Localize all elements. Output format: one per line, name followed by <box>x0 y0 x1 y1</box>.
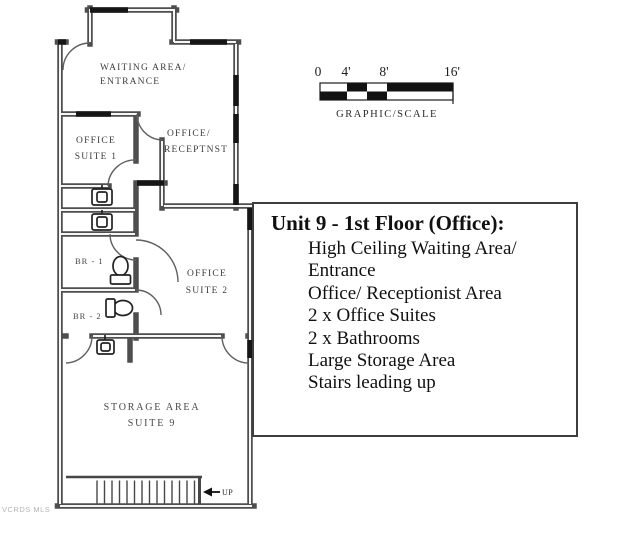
door-arc-storage-right <box>222 336 249 363</box>
toilet-icon <box>111 257 131 285</box>
scale-tick-4: 4' <box>341 64 350 79</box>
room-label-waiting-area-2: ENTRANCE <box>100 77 160 87</box>
room-label-office-suite-1b: SUITE 1 <box>75 152 117 162</box>
unit-info-box: Unit 9 - 1st Floor (Office): High Ceilin… <box>252 202 578 437</box>
room-label-waiting-area-1: WAITING AREA/ <box>100 63 187 73</box>
scale-bar-segment <box>347 83 367 92</box>
room-label-storage-1: STORAGE AREA <box>104 402 201 413</box>
door-arc-storage-left <box>66 336 92 363</box>
unit-info-title: Unit 9 - 1st Floor (Office): <box>271 211 576 236</box>
room-label-office-suite-2b: SUITE 2 <box>186 286 228 296</box>
scale-tick-16: 16' <box>444 64 460 79</box>
scale-bar-segment <box>320 92 347 101</box>
unit-info-item: Large Storage Area <box>308 350 576 372</box>
unit-info-item: Stairs leading up <box>308 372 576 394</box>
room-label-br-2: BR - 2 <box>73 311 102 321</box>
stairs-up-label: UP <box>222 488 233 497</box>
unit-info-item: Office/ Receptionist Area <box>308 283 576 305</box>
scale-bar-segment <box>367 92 387 101</box>
sink-icon <box>92 210 112 230</box>
scale-tick-8: 8' <box>379 64 388 79</box>
door-arc-office-suite-2 <box>136 240 178 282</box>
door-arc-office-suite-1 <box>108 160 136 186</box>
room-label-reception-2: RECEPTNST <box>164 145 228 155</box>
floorplan-page: UP WAITING AREA/ ENTRANCE OFFICE SUITE 1… <box>0 0 640 536</box>
toilet-icon <box>106 299 133 317</box>
room-label-reception-1: OFFICE/ <box>167 129 211 139</box>
scale-tick-0: 0 <box>315 64 322 79</box>
stairs: UP <box>66 477 233 504</box>
scale-caption: GRAPHIC/SCALE <box>336 109 438 120</box>
unit-info-item: 2 x Bathrooms <box>308 328 576 350</box>
up-arrow-icon <box>203 488 220 497</box>
room-label-br-1: BR - 1 <box>75 256 104 266</box>
scale-bar: 0 4' 8' 16' GRAPHIC/SCALE <box>315 64 460 120</box>
door-arc-entrance <box>63 43 90 70</box>
room-label-storage-2: SUITE 9 <box>128 418 176 429</box>
room-label-office-suite-2a: OFFICE <box>187 269 227 279</box>
room-labels: WAITING AREA/ ENTRANCE OFFICE SUITE 1 OF… <box>73 63 228 429</box>
door-arc-reception <box>137 114 162 140</box>
unit-info-item: 2 x Office Suites <box>308 305 576 327</box>
mls-watermark: VCRDS MLS <box>2 505 50 514</box>
scale-bar-segment <box>387 83 453 92</box>
unit-info-item: Entrance <box>308 260 576 282</box>
room-label-office-suite-1a: OFFICE <box>76 136 116 146</box>
unit-info-item: High Ceiling Waiting Area/ <box>308 238 576 260</box>
door-arc-br-2 <box>136 290 161 315</box>
